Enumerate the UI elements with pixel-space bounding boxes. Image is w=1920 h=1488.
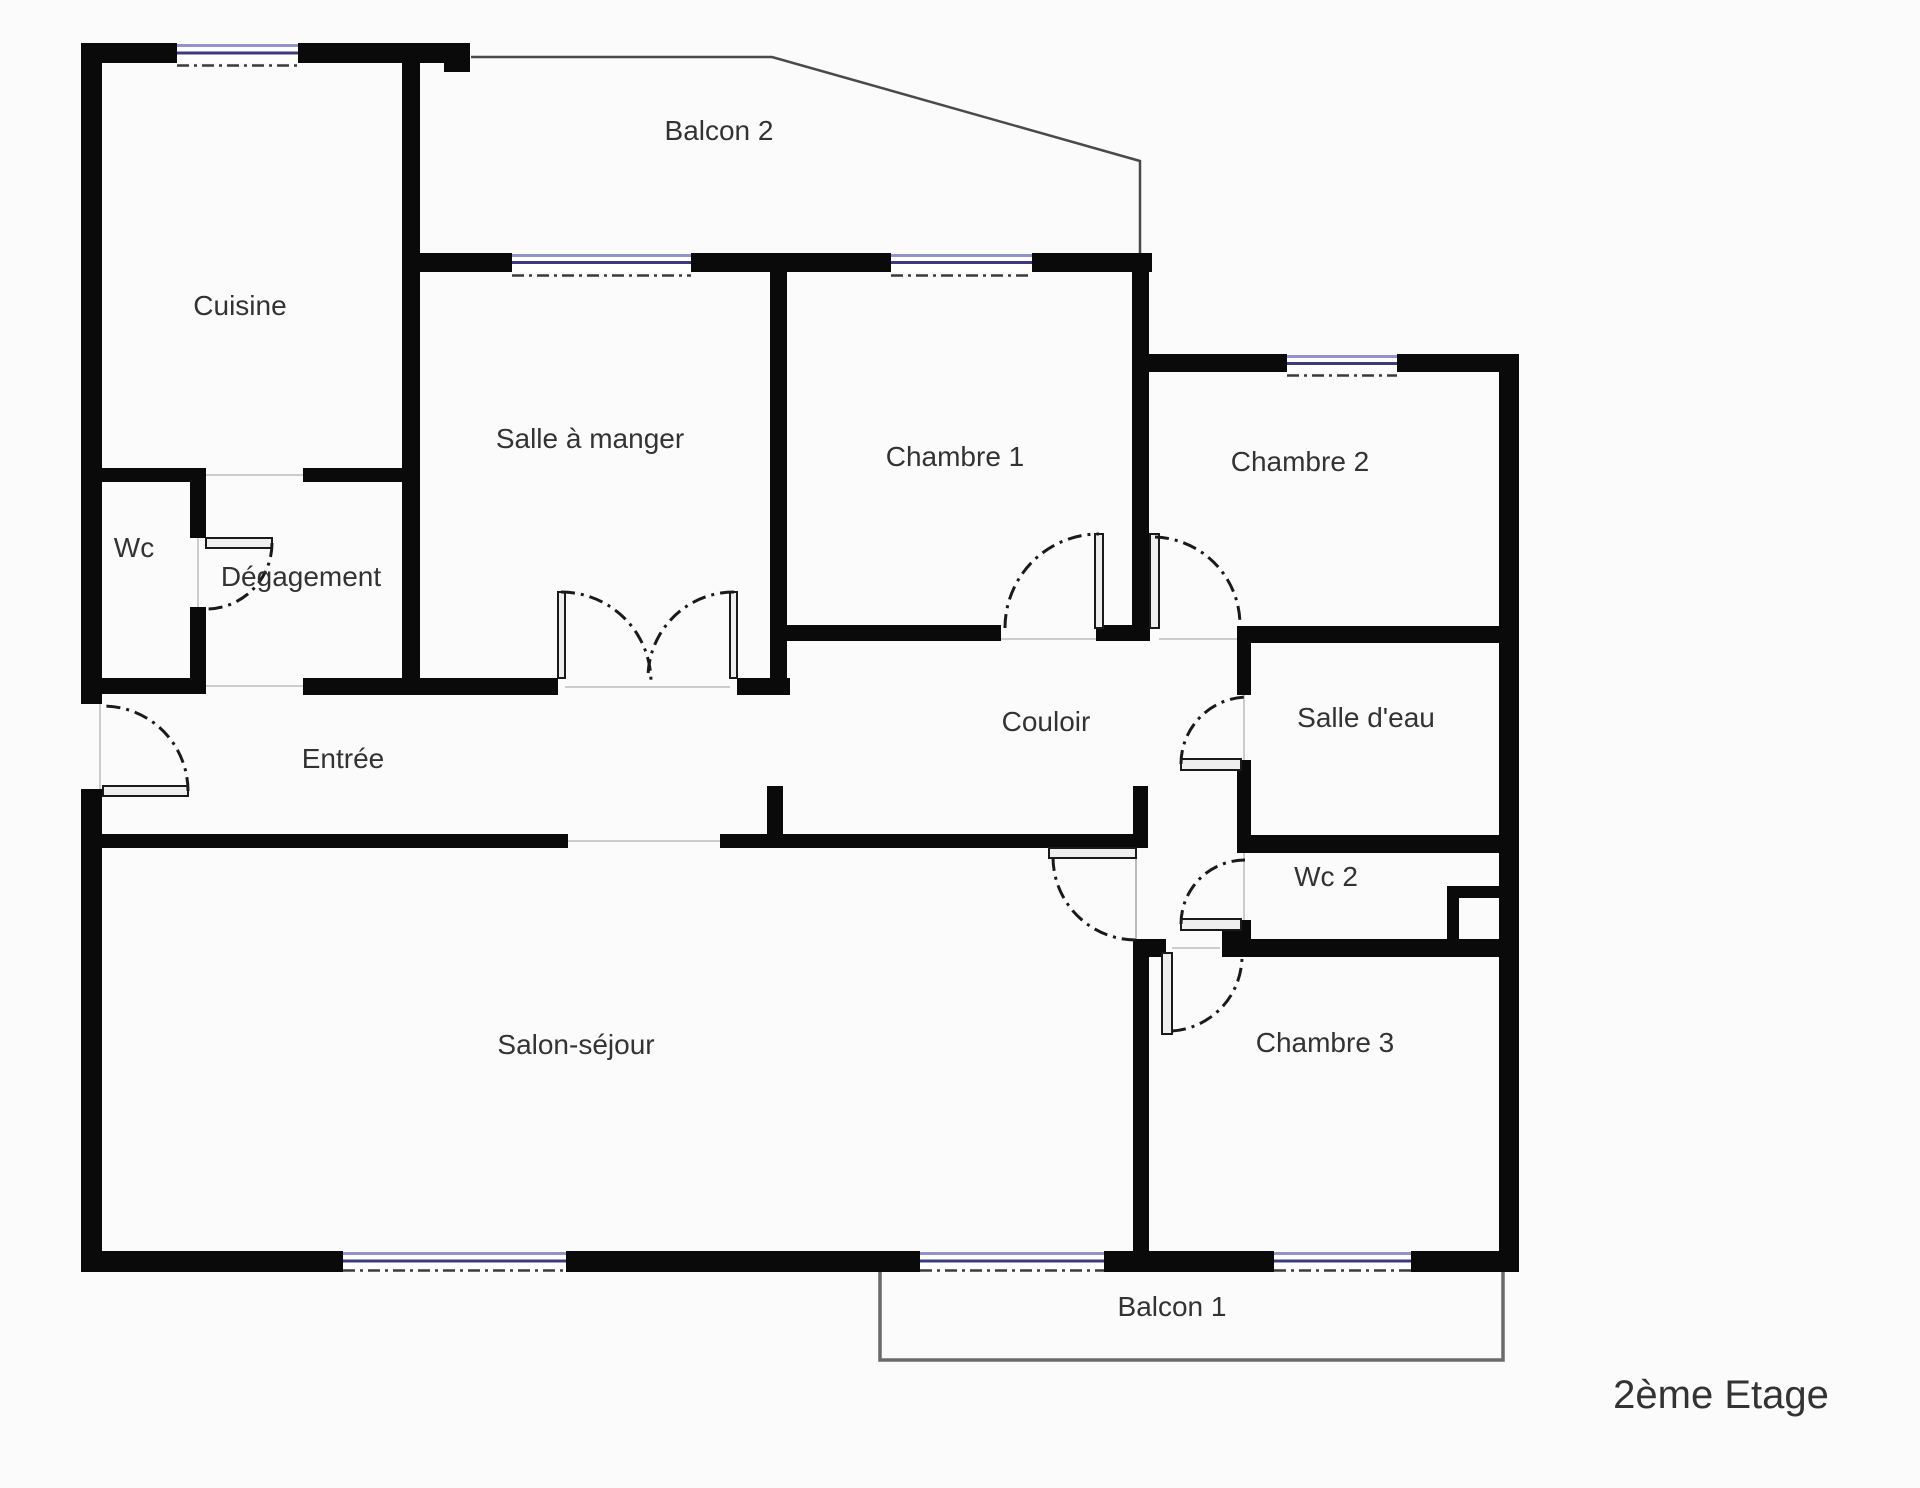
svg-text:Chambre 1: Chambre 1: [886, 441, 1025, 472]
svg-text:Couloir: Couloir: [1002, 706, 1091, 737]
svg-text:Salon-séjour: Salon-séjour: [497, 1029, 654, 1060]
svg-text:Salle à manger: Salle à manger: [496, 423, 684, 454]
svg-text:Wc 2: Wc 2: [1294, 861, 1358, 892]
svg-text:Dégagement: Dégagement: [221, 561, 382, 592]
svg-text:Chambre 2: Chambre 2: [1231, 446, 1370, 477]
svg-text:Salle d'eau: Salle d'eau: [1297, 702, 1435, 733]
svg-text:Chambre 3: Chambre 3: [1256, 1027, 1395, 1058]
svg-text:Balcon 1: Balcon 1: [1118, 1291, 1227, 1322]
svg-text:Balcon 2: Balcon 2: [665, 115, 774, 146]
svg-text:Cuisine: Cuisine: [193, 290, 286, 321]
svg-text:Wc: Wc: [114, 532, 154, 563]
svg-text:2ème Etage: 2ème Etage: [1613, 1373, 1829, 1417]
svg-text:Entrée: Entrée: [302, 743, 385, 774]
